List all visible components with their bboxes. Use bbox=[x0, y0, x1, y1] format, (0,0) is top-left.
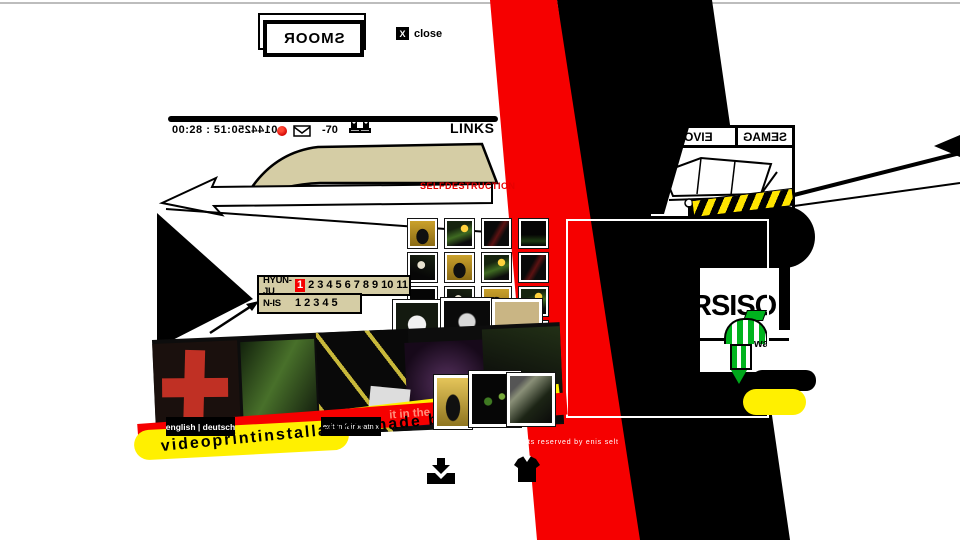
jacket-download-icon[interactable] bbox=[512, 455, 542, 483]
red-cross-horizontal bbox=[162, 378, 228, 398]
envelope-icon[interactable] bbox=[293, 125, 311, 137]
links-menu-item[interactable]: LINKS bbox=[450, 120, 495, 136]
thumbnail[interactable] bbox=[482, 219, 511, 248]
yellow-pill-right bbox=[743, 389, 806, 415]
timecode-prefix: 00:28 : 51: bbox=[172, 124, 231, 136]
nav-number-5[interactable]: 5 bbox=[332, 297, 338, 310]
rooms-label: SMOOR bbox=[283, 30, 345, 47]
nav-number-7[interactable]: 7 bbox=[354, 279, 360, 292]
black-pill bbox=[752, 370, 816, 391]
nav-number-5[interactable]: 5 bbox=[336, 279, 342, 292]
thumbnail[interactable] bbox=[408, 219, 437, 248]
nav-number-4[interactable]: 4 bbox=[322, 297, 328, 310]
right-diagonal-2 bbox=[794, 183, 960, 206]
status-rule bbox=[168, 116, 498, 122]
page: EIVOM SEMAG RSISO wa bbox=[0, 0, 960, 540]
tab-games[interactable]: SEMAG bbox=[735, 128, 792, 145]
close-label: close bbox=[414, 28, 442, 40]
nav-row-nis: N-IS 12345 bbox=[257, 293, 362, 314]
nav-number-9[interactable]: 9 bbox=[372, 279, 378, 292]
right-diagonal-1 bbox=[790, 153, 960, 196]
close-x-icon: X bbox=[396, 27, 409, 40]
timecode: 00:28 : 51:0144250 bbox=[172, 124, 278, 136]
nav-number-2[interactable]: 2 bbox=[304, 297, 310, 310]
nav-number-10[interactable]: 10 bbox=[381, 279, 393, 292]
rights-line: ts reserved by enis selt bbox=[528, 439, 619, 446]
thumbnail[interactable] bbox=[445, 219, 474, 248]
nav-number-2[interactable]: 2 bbox=[308, 279, 314, 292]
nav-number-8[interactable]: 8 bbox=[363, 279, 369, 292]
rooms-button[interactable]: SMOOR bbox=[263, 20, 364, 57]
thumbnail[interactable] bbox=[482, 253, 511, 282]
nav-number-6[interactable]: 6 bbox=[345, 279, 351, 292]
thumbnail[interactable] bbox=[519, 253, 548, 282]
thumbnail-machine[interactable] bbox=[507, 373, 555, 426]
thumbnail[interactable] bbox=[445, 253, 474, 282]
right-vertical-bar bbox=[779, 213, 790, 330]
thumbnail[interactable] bbox=[408, 253, 437, 282]
castle-icon[interactable] bbox=[349, 119, 371, 134]
right-sliver bbox=[934, 135, 960, 157]
nav-number-11[interactable]: 11 bbox=[396, 279, 408, 292]
selfdestruction-label[interactable]: SELFDESTRUCTION bbox=[420, 181, 516, 191]
close-button[interactable]: X close bbox=[396, 27, 442, 40]
black-wedge bbox=[157, 213, 253, 348]
nav-row2-label: N-IS bbox=[259, 298, 295, 309]
nav-row2-numbers: 12345 bbox=[295, 297, 338, 310]
nav-number-4[interactable]: 4 bbox=[326, 279, 332, 292]
nav-row1-numbers: 1234567891011 bbox=[295, 279, 408, 292]
thumbnail-figure[interactable] bbox=[434, 375, 472, 429]
nav-number-1[interactable]: 1 bbox=[295, 297, 301, 310]
nav-number-3[interactable]: 3 bbox=[313, 297, 319, 310]
nav-number-1[interactable]: 1 bbox=[295, 279, 305, 292]
white-outline-rect bbox=[566, 219, 769, 418]
record-dot-icon bbox=[277, 126, 287, 136]
thumbnail[interactable] bbox=[519, 219, 548, 248]
timecode-counter: 0144250 bbox=[231, 124, 277, 136]
level-counter: -70 bbox=[322, 124, 338, 136]
download-icon[interactable] bbox=[427, 458, 455, 484]
tab-games-label: SEMAG bbox=[743, 130, 787, 144]
nav-number-3[interactable]: 3 bbox=[317, 279, 323, 292]
